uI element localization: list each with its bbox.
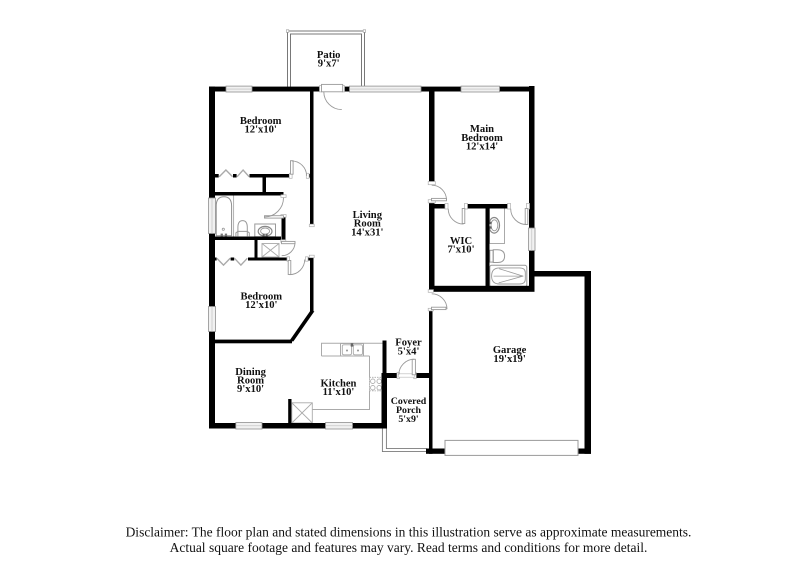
- svg-text:Disclaimer: The floor plan and: Disclaimer: The floor plan and stated di…: [126, 524, 692, 539]
- svg-text:12'x14': 12'x14': [466, 142, 498, 153]
- svg-text:19'x19': 19'x19': [493, 354, 525, 365]
- svg-text:5'x9': 5'x9': [398, 414, 418, 425]
- svg-text:5'x4': 5'x4': [398, 346, 420, 357]
- svg-text:14'x31': 14'x31': [351, 227, 383, 238]
- svg-text:7'x10': 7'x10': [447, 245, 474, 256]
- svg-text:Actual square footage and feat: Actual square footage and features may v…: [170, 540, 648, 555]
- svg-text:12'x10': 12'x10': [245, 300, 277, 311]
- svg-text:11'x10': 11'x10': [323, 387, 355, 398]
- svg-text:12'x10': 12'x10': [245, 125, 277, 136]
- svg-text:9'x10': 9'x10': [237, 384, 264, 395]
- svg-text:9'x7': 9'x7': [318, 59, 340, 70]
